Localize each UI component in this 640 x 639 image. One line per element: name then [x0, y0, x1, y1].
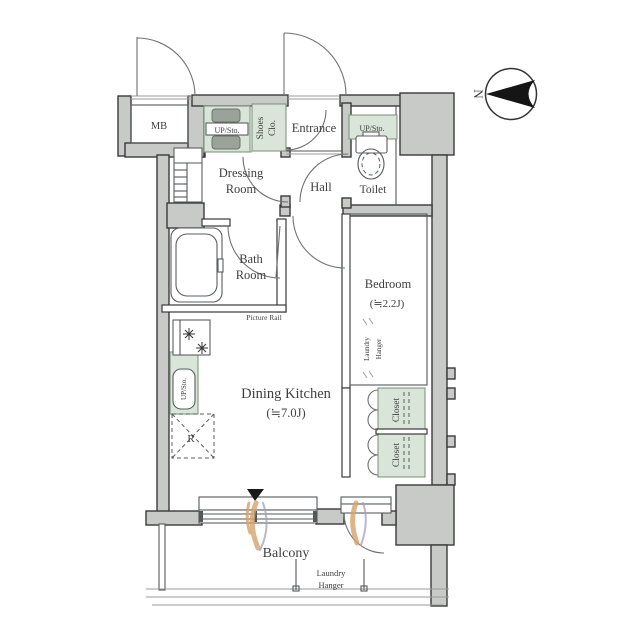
wall-bedroom-partition [342, 214, 350, 388]
curtain-icon [353, 503, 357, 543]
room-label-bedroom: Bedroom [365, 277, 412, 291]
svg-text:Clo.: Clo. [268, 120, 278, 136]
wall-window-pier [316, 509, 344, 524]
closet-divider [376, 429, 427, 434]
entrance-door-arc [284, 33, 346, 95]
toilet-door-arc [300, 154, 348, 202]
storage-icon [212, 136, 240, 149]
room-label-hall: Hall [310, 180, 332, 194]
bathtub-inner [176, 234, 217, 296]
svg-text:Shoes: Shoes [256, 116, 266, 139]
wall-tab [447, 388, 455, 399]
mb-door-arc [137, 38, 195, 96]
wall-bath-bottom [162, 305, 286, 312]
walls [118, 93, 455, 606]
hall-dk-door-arc [293, 216, 345, 268]
label-up-sto-toilet: UP/Sto. [359, 124, 384, 133]
closet-bifold-arc [368, 410, 378, 430]
room-label-entrance: Entrance [292, 121, 337, 135]
room-label-dressing-2: Room [226, 182, 257, 196]
room-label-dressing-1: Dressing [219, 166, 264, 180]
room-label-dining-kitchen: Dining Kitchen [241, 386, 332, 402]
label-closet-lower: Closet [392, 443, 402, 468]
storage-icon [212, 109, 240, 122]
room-label-dining-kitchen-size: (≒7.0J) [266, 406, 305, 420]
svg-text:Hanger: Hanger [375, 338, 383, 359]
compass-north-label: N [471, 89, 486, 99]
floor-plan: N MB Entrance Shoes Clo. UP/Sto. Dressin… [0, 0, 640, 639]
wall-bath-right [277, 219, 286, 312]
toilet-bowl-inner [362, 153, 380, 175]
wall-bath-top [202, 219, 230, 226]
door-recess [341, 497, 391, 504]
toilet-tank [356, 136, 387, 153]
label-picture-rail: Picture Rail [246, 313, 282, 322]
wall-tab [447, 436, 455, 447]
window-sash [313, 511, 317, 522]
room-label-bath-2: Room [236, 268, 267, 282]
dk-window [199, 510, 317, 523]
label-laundry-hanger-balcony-2: Hanger [318, 580, 343, 590]
wall [342, 198, 351, 208]
compass: N [471, 69, 537, 120]
room-label-balcony: Balcony [263, 546, 310, 561]
label-laundry-hanger-bedroom: Laundry Hanger [363, 337, 383, 361]
label-laundry-hanger-balcony-1: Laundry [317, 568, 347, 578]
label-refrigerator: R [187, 433, 195, 445]
label-closet-upper: Closet [392, 398, 402, 423]
label-up-sto-dressing: UP/Sto. [214, 126, 239, 135]
north-arrow-icon [486, 80, 535, 108]
svg-text:Laundry: Laundry [363, 337, 371, 361]
wall-plumbing-block [167, 203, 204, 228]
wall-pillar-top-right [400, 93, 454, 155]
balcony-side-wall [159, 524, 165, 590]
window-sash [199, 511, 203, 522]
wall-pillar-bottom-right [396, 485, 454, 545]
wall-right [432, 155, 447, 485]
wall-tab [447, 474, 455, 485]
bathtub-handle [218, 259, 223, 272]
wall-bedroom-partition-lower [342, 388, 350, 477]
room-label-mb: MB [151, 121, 167, 132]
room-label-bedroom-size: (≒2.2J) [370, 298, 405, 310]
label-up-sto-kitchen: UP/Sto. [180, 378, 188, 400]
washer-pan [174, 148, 202, 202]
closet-bifold-arc [368, 390, 378, 410]
floor-plan-drawing: N MB Entrance Shoes Clo. UP/Sto. Dressin… [0, 0, 640, 639]
closet-bifold-arc [368, 455, 378, 475]
wall [146, 511, 202, 525]
wall-tab [447, 368, 455, 379]
closet-bifold-arc [368, 435, 378, 455]
room-label-toilet: Toilet [360, 184, 387, 196]
room-label-bath-1: Bath [239, 252, 263, 266]
